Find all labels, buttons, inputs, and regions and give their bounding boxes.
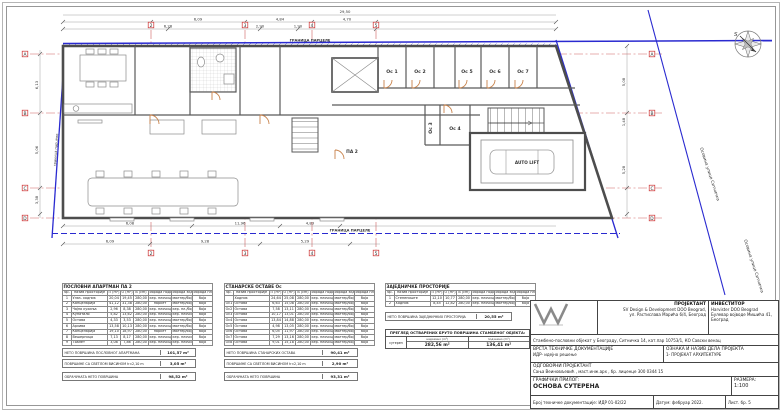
dim-overall: 29,50	[340, 9, 351, 14]
room-label-oc6: Ос 6	[489, 69, 500, 75]
svg-text:4,70: 4,70	[343, 17, 352, 22]
gross-below-value: 136,41 m²	[469, 342, 530, 348]
svg-text:4,84: 4,84	[276, 17, 285, 22]
table-cell: 8,45	[431, 301, 444, 307]
summary-calculated: ОБРАЧУНАТА НЕТО ПОВРШИНА93,31 m²	[224, 372, 358, 381]
elevator-shaft	[332, 58, 378, 92]
room-label-oc5: Ос 5	[461, 69, 472, 75]
table-cell: боја	[355, 340, 375, 346]
table-cell: Ос8	[225, 340, 234, 346]
svg-text:6,09: 6,09	[194, 17, 203, 22]
table-cell: 3,08	[108, 340, 121, 346]
project-part: ОЗНАКА И НАЗИВ ДЕЛА ПРОЈЕКТА 1- ПРОЈЕКАТ…	[664, 346, 778, 362]
table-cell: 280,00	[296, 340, 311, 346]
room-label-oc2: Ос 2	[414, 69, 425, 75]
svg-text:11,96: 11,96	[235, 221, 246, 226]
compass-north-letter: S	[734, 32, 738, 38]
street-axis-label: Осовина улице Ситничка	[699, 147, 721, 202]
title-block: ПРОЈЕКТАНТ SV Design & Development DOO B…	[530, 300, 779, 409]
svg-text:4: 4	[311, 23, 314, 29]
responsible-designer: ОДГОВОРНИ ПРОЈЕКТАНТ Сања Веиновљевић , …	[531, 363, 778, 376]
drawing-sheet: { "plan": { "grid_cols": ["2","3","4","5…	[0, 0, 782, 412]
svg-text:5: 5	[375, 251, 378, 257]
table-pa2: ПОСЛОВНИ АПАРТМАН ПА 2 бр.назив простори…	[62, 283, 213, 346]
svg-text:C: C	[23, 186, 26, 192]
room-label-oc4: Ос 4	[449, 126, 460, 132]
summary-low-height: ПОВРШИНЕ СА СВЕТЛОМ ВИСИНОМ h<2,10 m3,05…	[62, 359, 196, 368]
street-axis-label-2: Осовина улице Ситничка	[743, 239, 765, 294]
building: Ос 1 Ос 2 Ос 5 Ос 6 Ос 7 Ос 3 Ос 4 AUTO …	[63, 46, 612, 221]
table-cell: кер. плочице	[149, 340, 172, 346]
gross-area-table: ПРЕГЛЕД ОСТВАРЕНИХ БРУТО ПОВРШИНА СТАМБЕ…	[385, 329, 530, 349]
scale-value: 1:100	[734, 383, 776, 389]
svg-text:B: B	[23, 111, 26, 117]
svg-text:A: A	[650, 52, 653, 58]
table-cell: 7,86	[121, 340, 134, 346]
table-cell: 9,01	[270, 340, 283, 346]
table-row: 9Тоалет3,087,86280,00кер. плочицекер. пл…	[63, 340, 213, 346]
svg-text:5,06: 5,06	[34, 145, 39, 154]
gross-title: ПРЕГЛЕД ОСТВАРЕНИХ БРУТО ПОВРШИНА СТАМБЕ…	[386, 330, 529, 337]
schedule-common-rooms: ЗАЈЕДНИЧКЕ ПРОСТОРИЈЕ бр.назив просториј…	[385, 283, 536, 349]
svg-text:A: A	[23, 52, 26, 58]
svg-text:2: 2	[150, 23, 153, 29]
table-cell: Тоалет	[72, 340, 108, 346]
svg-text:1,90: 1,90	[294, 24, 303, 29]
gross-row-label: сутерен	[386, 337, 407, 348]
table-cell: кер. плочице	[311, 340, 334, 346]
svg-text:B: B	[650, 111, 653, 117]
investor-info: ИНВЕСТИТОР Harvister DOO Beograd Булевар…	[709, 301, 778, 334]
room-label-pa2: ПА 2	[346, 149, 358, 155]
table-common: ЗАЈЕДНИЧКЕ ПРОСТОРИЈЕ бр.назив просториј…	[385, 283, 536, 307]
floor-plan: 29,50 6,09 4,84 4,70 6,28 2,90 1,90 6,08…	[0, 0, 782, 300]
company-logo	[531, 301, 598, 334]
boundary-label-top: ГРАНИЦА ПАРЦЕЛЕ	[290, 39, 331, 43]
project-object-line: Стамбено-пословни објекат у Београду, Си…	[531, 337, 778, 344]
table-cell: боја	[193, 340, 213, 346]
svg-text:6,13: 6,13	[34, 80, 39, 89]
table-cell: малтер/боја	[334, 340, 355, 346]
table-row: Ос8Остава9,0115,18280,00кер. плочицемалт…	[225, 340, 375, 346]
table-cell: 9	[63, 340, 72, 346]
table-cell: 2	[386, 301, 395, 307]
svg-text:5,08: 5,08	[621, 77, 626, 86]
room-label-oc7: Ос 7	[517, 69, 528, 75]
table-cell: 15,18	[283, 340, 296, 346]
boundary-label-bottom: ГРАНИЦА ПАРЦЕЛЕ	[330, 229, 371, 233]
svg-text:5,29: 5,29	[301, 239, 310, 244]
table-cell: кер. плочице	[172, 340, 193, 346]
summary-net-area: НЕТО ПОВРШИНА ПОСЛОВНОГ АПАРТМАНА101,57 …	[62, 348, 196, 357]
compass-rose-icon: S	[734, 31, 761, 57]
graphic-attachment: ГРАФИЧКИ ПРИЛОГ: ОСНОВА СУТЕРЕНА	[531, 377, 732, 395]
gross-above-value: 282,56 m²	[407, 342, 468, 348]
svg-text:3: 3	[244, 251, 247, 257]
svg-text:2,90: 2,90	[256, 24, 265, 29]
drawing-name: ОСНОВА СУТЕРЕНА	[533, 383, 729, 390]
schedule-business-apartment: ПОСЛОВНИ АПАРТМАН ПА 2 бр.назив простори…	[62, 283, 213, 381]
table-cell: 280,00	[134, 340, 149, 346]
table-cell: малтер/боја	[495, 301, 516, 307]
table-cell: Ходник	[395, 301, 431, 307]
svg-text:9,28: 9,28	[201, 239, 210, 244]
summary-net-area: НЕТО ПОВРШИНА СТАНАРСКИХ ОСТАВА90,41 m²	[224, 348, 358, 357]
doc-type: ВРСТА ТЕХНИЧКЕ ДОКУМЕНТАЦИЈЕ ИДР- идејно…	[531, 346, 664, 362]
svg-text:4: 4	[311, 251, 314, 257]
room-label-oc1: Ос 1	[386, 69, 397, 75]
svg-text:5: 5	[375, 23, 378, 29]
svg-text:6,09: 6,09	[106, 239, 115, 244]
svg-text:4,83: 4,83	[306, 221, 315, 226]
table-row: 2Ходник8,4512,82280,00кер. плочицемалтер…	[386, 301, 536, 307]
sv-logo-icon	[531, 301, 571, 327]
summary-low-height: ПОВРШИНЕ СА СВЕТЛОМ ВИСИНОМ h<2,10 m2,90…	[224, 359, 358, 368]
svg-text:5,28: 5,28	[621, 165, 626, 174]
table-cell: 280,00	[457, 301, 472, 307]
svg-text:3: 3	[244, 23, 247, 29]
table-cell: кер. плочице	[472, 301, 495, 307]
room-label-auto-lift: AUTO LIFT	[515, 160, 539, 165]
table-cell: 12,82	[444, 301, 457, 307]
sheet-number: Лист. бр. 5	[726, 395, 778, 409]
table-ostave: СТАНАРСКЕ ОСТАВЕ Ос бр.назив просторијеП…	[224, 283, 375, 346]
summary-common-net: НЕТО ПОВРШИНА ЗАЈЕДНИЧКИХ ПРОСТОРИЈА20,5…	[385, 312, 512, 321]
svg-text:C: C	[650, 186, 653, 192]
room-label-oc3: Ос 3	[428, 122, 434, 133]
svg-text:2: 2	[150, 251, 153, 257]
scale-box: РАЗМЕРА: 1:100	[732, 377, 778, 395]
svg-text:1,48: 1,48	[621, 117, 626, 126]
schedule-tenant-storages: СТАНАРСКЕ ОСТАВЕ Ос бр.назив просторијеП…	[224, 283, 375, 381]
svg-text:6,28: 6,28	[164, 24, 173, 29]
doc-date: Датум: фебруар 2022.	[654, 395, 726, 409]
doc-number: Број техничке документације: ИДР 01-02/2…	[531, 395, 654, 409]
table-cell: Остава	[234, 340, 270, 346]
designer-info: ПРОЈЕКТАНТ SV Design & Development DOO B…	[598, 301, 709, 334]
staircase-small	[292, 118, 318, 152]
svg-text:3,38: 3,38	[34, 195, 39, 204]
summary-calculated: ОБРАЧУНАТА НЕТО ПОВРШИНА98,52 m²	[62, 372, 196, 381]
